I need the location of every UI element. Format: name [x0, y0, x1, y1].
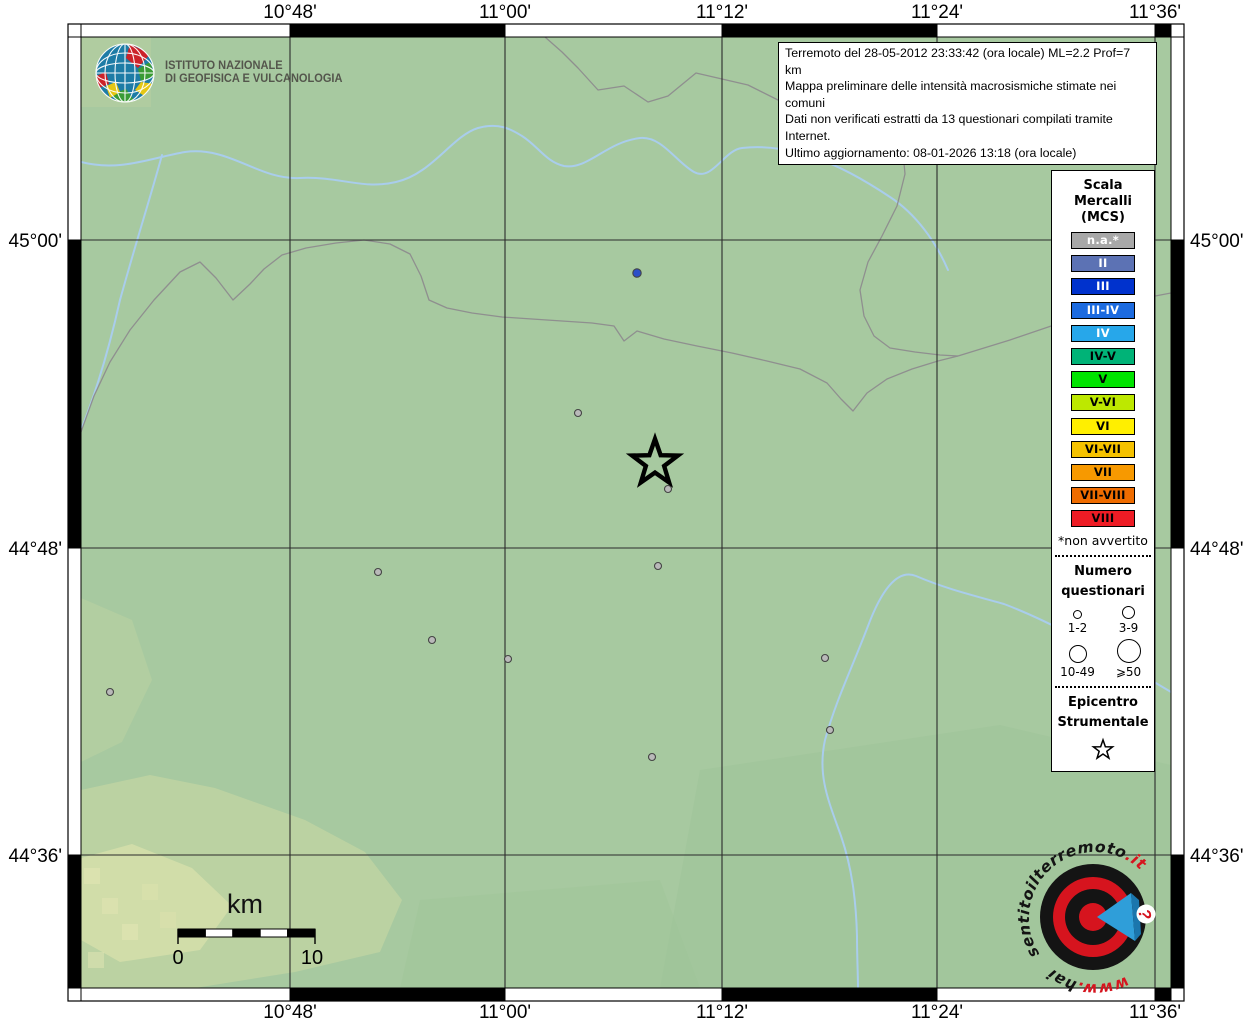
latitude-label-left: 44°48' — [9, 539, 63, 560]
questionnaire-size-label: 1-2 — [1068, 621, 1088, 635]
latitude-label-right: 45°00' — [1190, 231, 1244, 252]
questionnaire-dot-na — [429, 637, 436, 644]
frame-segment — [68, 855, 81, 988]
longitude-label-bottom: 11°12' — [696, 1002, 748, 1023]
longitude-label-bottom: 11°00' — [479, 1002, 531, 1023]
mercalli-class-vii-viii: VII-VIII — [1071, 487, 1135, 504]
frame-segment — [505, 24, 722, 37]
epicenter-key-title: Epicentro Strumentale — [1052, 693, 1154, 733]
questionnaire-size-circle — [1069, 645, 1087, 663]
questionnaire-size-circle — [1122, 606, 1135, 619]
scale-bar-segment — [260, 929, 287, 937]
frame-segment — [1155, 24, 1171, 37]
questionnaire-dot-intensity — [633, 269, 641, 277]
macroseismic-map-page: 10°48'11°00'11°12'11°24'11°36'10°48'11°0… — [0, 0, 1255, 1024]
frame-segment — [722, 988, 937, 1001]
latitude-label-right: 44°36' — [1190, 846, 1244, 867]
longitude-label-bottom: 10°48' — [263, 1002, 317, 1023]
questionnaire-dot-na — [505, 656, 512, 663]
questionnaire-dot-na — [655, 563, 662, 570]
questionnaire-size-item: 10-49 — [1052, 639, 1103, 679]
frame-segment — [1171, 855, 1184, 988]
mercalli-class-v: V — [1071, 371, 1135, 388]
mercalli-class-iii-iv: III-IV — [1071, 302, 1135, 319]
mercalli-class-viii: VIII — [1071, 510, 1135, 527]
frame-segment — [1155, 988, 1171, 1001]
mercalli-class-iv-v: IV-V — [1071, 348, 1135, 365]
questionnaire-dot-na — [665, 486, 672, 493]
scale-bar-segment — [233, 929, 260, 937]
frame-segment — [290, 24, 505, 37]
frame-segment — [68, 24, 81, 37]
frame-segment — [1171, 37, 1184, 240]
scale-bar-ten: 10 — [301, 947, 323, 969]
questionnaire-size-item: ⩾50 — [1103, 639, 1154, 679]
frame-segment — [1171, 24, 1184, 37]
questionnaire-dot-na — [822, 655, 829, 662]
frame-segment — [1171, 548, 1184, 855]
legend-title: Scala Mercalli (MCS) — [1052, 178, 1154, 226]
legend-footnote: *non avvertito — [1052, 533, 1154, 548]
questionnaire-dot-na — [107, 689, 114, 696]
frame-segment — [505, 988, 722, 1001]
questionnaire-size-key: 1-23-910-49⩾50 — [1052, 606, 1154, 679]
longitude-label-top: 11°36' — [1129, 2, 1181, 23]
info-line-data-source: Dati non verificati estratti da 13 quest… — [785, 111, 1150, 144]
earthquake-info-box: Terremoto del 28-05-2012 23:33:42 (ora l… — [778, 42, 1157, 165]
scale-bar-segment — [205, 929, 232, 937]
questionnaire-size-item: 1-2 — [1052, 606, 1103, 635]
map-land — [81, 37, 1171, 988]
latitude-label-left: 45°00' — [9, 231, 63, 252]
longitude-label-top: 11°24' — [911, 2, 963, 23]
mercalli-class-ii: II — [1071, 255, 1135, 272]
info-line-event: Terremoto del 28-05-2012 23:33:42 (ora l… — [785, 45, 1150, 78]
divider — [1055, 686, 1151, 688]
scale-bar-unit: km — [227, 889, 263, 919]
legend-panel: Scala Mercalli (MCS) n.a.*IIIIIIII-IVIVI… — [1051, 170, 1155, 772]
questionnaire-dot-na — [649, 754, 656, 761]
longitude-label-top: 10°48' — [263, 2, 317, 23]
frame-segment — [1171, 240, 1184, 548]
questionnaire-size-circle — [1117, 639, 1141, 663]
questionnaire-dot-na — [575, 410, 582, 417]
frame-segment — [68, 988, 81, 1001]
ingv-logo-text: ISTITUTO NAZIONALE DI GEOFISICA E VULCAN… — [165, 60, 342, 87]
info-line-map-type: Mappa preliminare delle intensità macros… — [785, 78, 1150, 111]
frame-segment — [1171, 988, 1184, 1001]
questionnaire-dot-na — [827, 727, 834, 734]
questionnaire-size-label: 3-9 — [1119, 621, 1139, 635]
frame-segment — [937, 24, 1155, 37]
scale-bar-segment — [288, 929, 315, 937]
mercalli-class-v-vi: V-VI — [1071, 394, 1135, 411]
questionnaire-count-title: Numero questionari — [1052, 562, 1154, 602]
questionnaire-size-label: 10-49 — [1060, 665, 1095, 679]
scale-bar-zero: 0 — [172, 947, 183, 969]
ingv-globe-icon — [94, 42, 156, 104]
frame-segment — [81, 24, 290, 37]
divider — [1055, 555, 1151, 557]
frame-segment — [68, 548, 81, 855]
frame-segment — [81, 988, 290, 1001]
mercalli-class-vi: VI — [1071, 418, 1135, 435]
ingv-logo: ISTITUTO NAZIONALE DI GEOFISICA E VULCAN… — [94, 42, 350, 104]
frame-segment — [722, 24, 937, 37]
scale-bar-segment — [178, 929, 205, 937]
epicenter-key-star-icon — [1052, 737, 1154, 767]
mercalli-scale-list: n.a.*IIIIIIII-IVIVIV-VVV-VIVIVI-VIIVIIVI… — [1052, 232, 1154, 527]
longitude-label-top: 11°12' — [696, 2, 748, 23]
mercalli-class-iii: III — [1071, 278, 1135, 295]
mercalli-class-iv: IV — [1071, 325, 1135, 342]
mercalli-class-n-a-: n.a.* — [1071, 232, 1135, 249]
mercalli-class-vii: VII — [1071, 464, 1135, 481]
longitude-label-bottom: 11°24' — [911, 1002, 963, 1023]
frame-segment — [68, 240, 81, 548]
latitude-label-right: 44°48' — [1190, 539, 1244, 560]
frame-segment — [68, 37, 81, 240]
questionnaire-size-circle — [1073, 610, 1082, 619]
longitude-label-top: 11°00' — [479, 2, 531, 23]
mercalli-class-vi-vii: VI-VII — [1071, 441, 1135, 458]
longitude-label-bottom: 11°36' — [1129, 1002, 1181, 1023]
info-line-updated: Ultimo aggiornamento: 08-01-2026 13:18 (… — [785, 145, 1150, 162]
latitude-label-left: 44°36' — [9, 846, 63, 867]
questionnaire-size-item: 3-9 — [1103, 606, 1154, 635]
questionnaire-dot-na — [375, 569, 382, 576]
questionnaire-size-label: ⩾50 — [1116, 665, 1141, 679]
frame-segment — [290, 988, 505, 1001]
